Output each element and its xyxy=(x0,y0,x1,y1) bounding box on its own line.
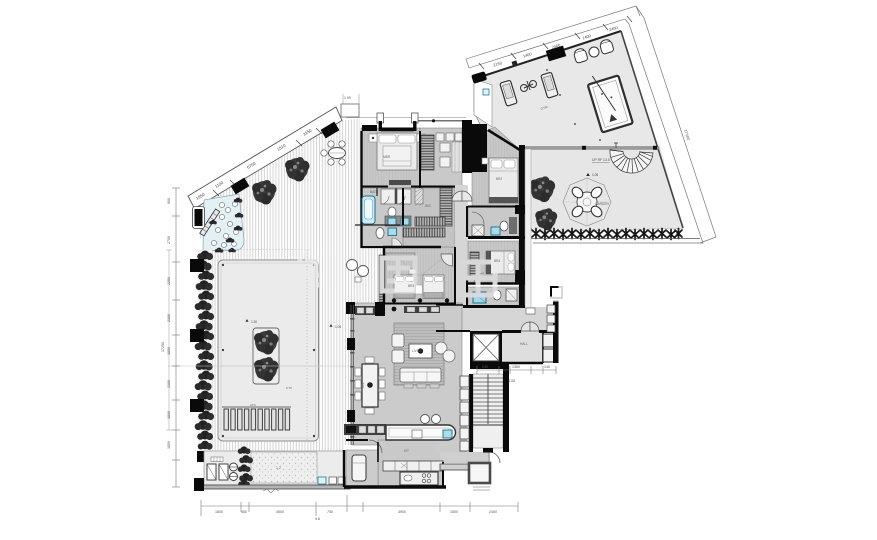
svg-text:2100: 2100 xyxy=(167,314,171,322)
svg-text:WIC: WIC xyxy=(425,204,432,208)
svg-text:1500: 1500 xyxy=(450,510,458,514)
svg-text:1800: 1800 xyxy=(215,510,223,514)
svg-text:BATH: BATH xyxy=(370,190,379,194)
svg-text:2400: 2400 xyxy=(489,510,497,514)
svg-text:1.50: 1.50 xyxy=(251,320,257,324)
svg-text:KIT: KIT xyxy=(404,449,409,453)
svg-text:900: 900 xyxy=(167,198,171,204)
svg-text:1.05: 1.05 xyxy=(592,173,598,177)
svg-text:BR2: BR2 xyxy=(496,177,502,181)
svg-text:4.08: 4.08 xyxy=(508,379,515,383)
svg-text:17250: 17250 xyxy=(161,342,165,352)
svg-text:750: 750 xyxy=(327,510,333,514)
svg-text:450: 450 xyxy=(241,510,247,514)
svg-text:BR4: BR4 xyxy=(494,259,500,263)
svg-text:1800: 1800 xyxy=(167,411,171,419)
svg-text:1.2: 1.2 xyxy=(276,466,281,470)
svg-text:1.05: 1.05 xyxy=(335,325,341,329)
svg-text:5.6: 5.6 xyxy=(315,517,320,521)
svg-text:2250: 2250 xyxy=(167,277,171,285)
svg-text:1800: 1800 xyxy=(167,441,171,449)
svg-text:MBR: MBR xyxy=(383,155,391,159)
svg-text:DIN: DIN xyxy=(361,382,365,388)
svg-text:LIVING: LIVING xyxy=(412,349,423,353)
svg-text:1800: 1800 xyxy=(167,347,171,355)
svg-text:BR3: BR3 xyxy=(408,284,414,288)
svg-text:140: 140 xyxy=(544,365,550,369)
svg-text:GARDEN: GARDEN xyxy=(595,202,609,206)
svg-text:1.09: 1.09 xyxy=(344,96,351,100)
svg-text:4500: 4500 xyxy=(276,510,284,514)
svg-text:3900: 3900 xyxy=(398,510,406,514)
svg-text:HALL: HALL xyxy=(520,342,528,346)
svg-text:ATD: ATD xyxy=(250,403,257,407)
svg-text:0.75: 0.75 xyxy=(286,386,292,390)
svg-text:2700: 2700 xyxy=(167,236,171,244)
svg-text:2100: 2100 xyxy=(167,380,171,388)
svg-text:UP RF 13.5: UP RF 13.5 xyxy=(592,158,610,162)
svg-text:1360: 1360 xyxy=(512,365,520,369)
svg-text:240: 240 xyxy=(482,365,488,369)
